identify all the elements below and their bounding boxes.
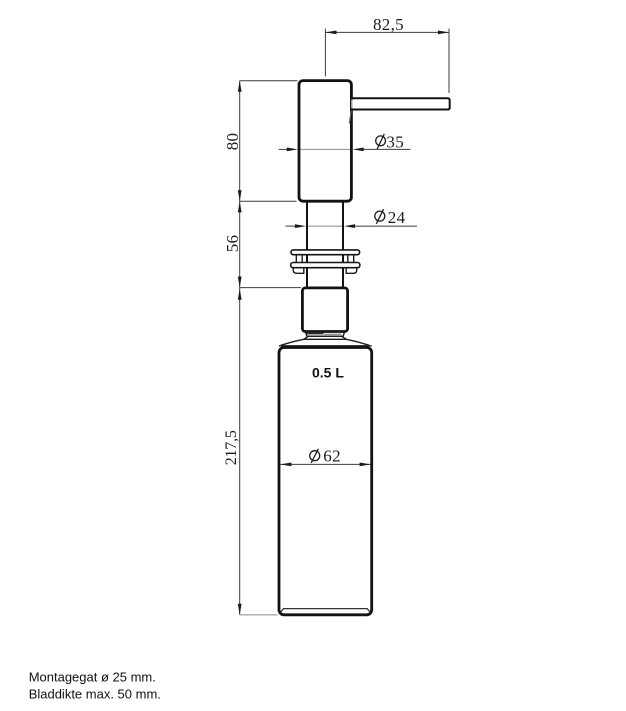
svg-text:62: 62 xyxy=(323,447,341,466)
svg-text:Montagegat ø 25 mm.: Montagegat ø 25 mm. xyxy=(29,670,156,685)
svg-text:217,5: 217,5 xyxy=(223,430,240,465)
svg-text:Bladdikte max. 50 mm.: Bladdikte max. 50 mm. xyxy=(29,687,161,702)
svg-text:0.5 L: 0.5 L xyxy=(312,365,344,381)
svg-text:35: 35 xyxy=(386,132,404,151)
svg-text:56: 56 xyxy=(223,235,242,253)
svg-text:24: 24 xyxy=(388,208,406,227)
svg-text:80: 80 xyxy=(223,133,242,151)
svg-text:82,5: 82,5 xyxy=(373,15,404,34)
